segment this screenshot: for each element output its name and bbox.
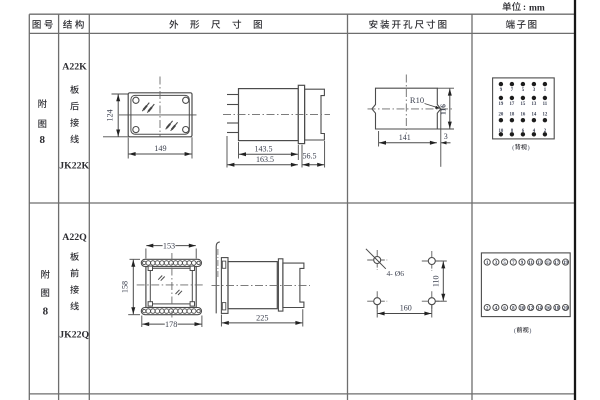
svg-text:158: 158 — [121, 281, 130, 293]
svg-text:JK22Q: JK22Q — [59, 330, 89, 341]
svg-text:R10: R10 — [410, 95, 424, 105]
svg-text:20: 20 — [563, 306, 568, 311]
svg-text:116: 116 — [438, 104, 447, 115]
svg-text:16: 16 — [546, 306, 551, 311]
svg-text:): ) — [529, 327, 531, 334]
svg-text:3: 3 — [444, 132, 448, 141]
svg-text:143.5: 143.5 — [255, 144, 273, 153]
svg-text:JK22K: JK22K — [59, 160, 89, 171]
svg-text:8: 8 — [40, 134, 46, 146]
svg-text:13: 13 — [537, 261, 542, 266]
svg-text:A22Q: A22Q — [62, 232, 87, 243]
svg-text:17: 17 — [554, 261, 559, 266]
svg-text:15: 15 — [521, 102, 526, 107]
svg-text:124: 124 — [106, 109, 115, 121]
svg-text:14: 14 — [532, 113, 537, 118]
svg-text:18: 18 — [510, 113, 515, 118]
svg-text:153: 153 — [163, 241, 175, 250]
svg-text:A22K: A22K — [62, 61, 87, 72]
svg-text:17: 17 — [510, 102, 515, 107]
svg-text:110: 110 — [431, 275, 440, 287]
svg-text:11: 11 — [543, 102, 548, 107]
svg-text:): ) — [528, 145, 530, 152]
svg-text:19: 19 — [563, 261, 568, 266]
svg-text:12: 12 — [528, 306, 533, 311]
svg-text:18: 18 — [554, 306, 559, 311]
svg-text:12: 12 — [543, 113, 548, 118]
svg-text:(: ( — [514, 327, 516, 334]
svg-text::: : — [523, 2, 526, 12]
svg-text:10: 10 — [520, 306, 525, 311]
svg-text:11: 11 — [528, 261, 533, 266]
svg-text:149: 149 — [154, 144, 166, 153]
svg-text:4- Ø6: 4- Ø6 — [387, 269, 405, 278]
svg-text:16: 16 — [521, 113, 526, 118]
svg-text:(: ( — [512, 145, 514, 152]
svg-text:mm: mm — [529, 3, 545, 13]
svg-text:19: 19 — [499, 102, 504, 107]
svg-text:8: 8 — [43, 305, 49, 317]
svg-text:10: 10 — [499, 129, 504, 134]
svg-text:56.5: 56.5 — [303, 152, 317, 161]
svg-text:15: 15 — [546, 261, 551, 266]
svg-text:225: 225 — [256, 314, 268, 323]
svg-text:141: 141 — [399, 133, 411, 142]
svg-text:178: 178 — [165, 320, 177, 329]
svg-text:160: 160 — [400, 303, 412, 312]
svg-text:20: 20 — [499, 113, 504, 118]
svg-text:163.5: 163.5 — [256, 155, 274, 164]
svg-text:13: 13 — [532, 102, 537, 107]
svg-text:14: 14 — [537, 306, 542, 311]
